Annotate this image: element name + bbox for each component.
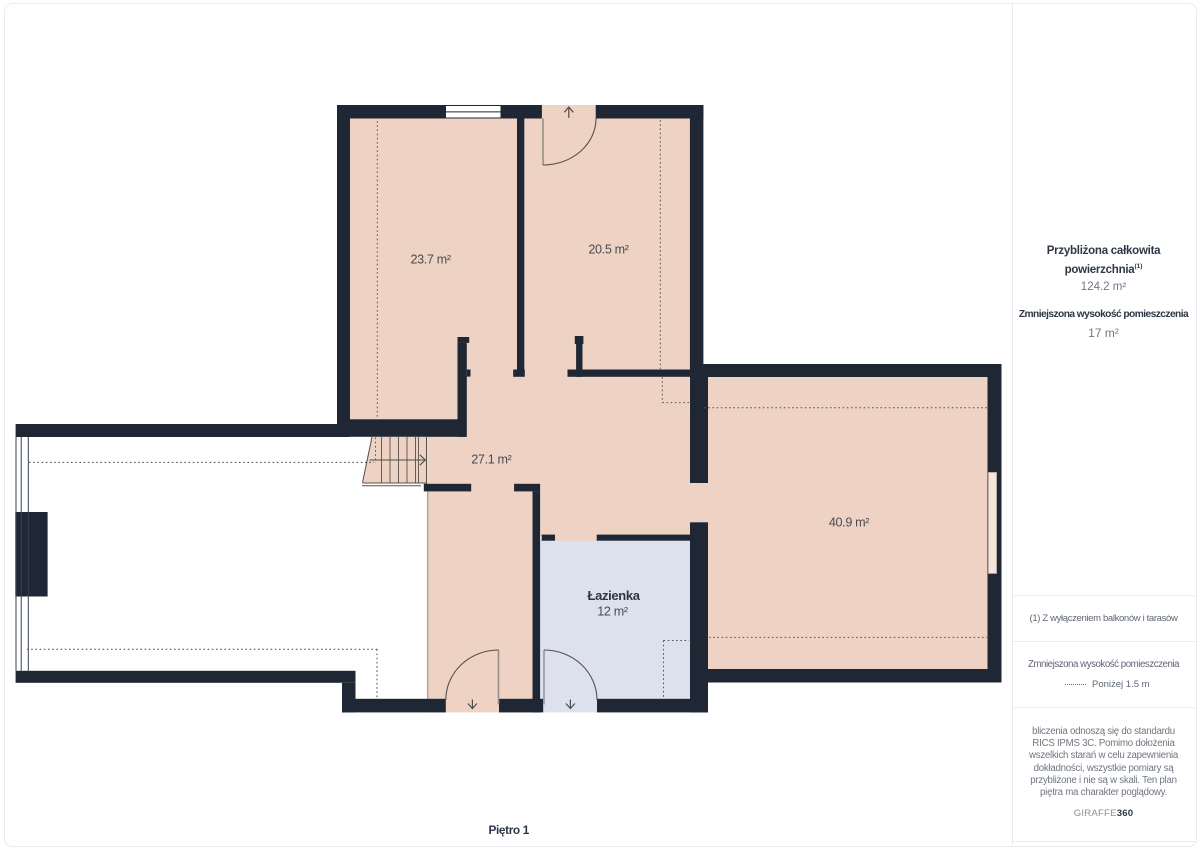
svg-text:23.7 m²: 23.7 m² (410, 253, 450, 267)
svg-text:27.1 m²: 27.1 m² (471, 453, 511, 467)
svg-text:Piętro 1: Piętro 1 (488, 823, 529, 837)
svg-text:Łazienka: Łazienka (588, 588, 641, 603)
svg-text:12 m²: 12 m² (597, 605, 628, 619)
svg-text:20.5 m²: 20.5 m² (588, 243, 628, 257)
svg-text:40.9 m²: 40.9 m² (829, 516, 869, 530)
